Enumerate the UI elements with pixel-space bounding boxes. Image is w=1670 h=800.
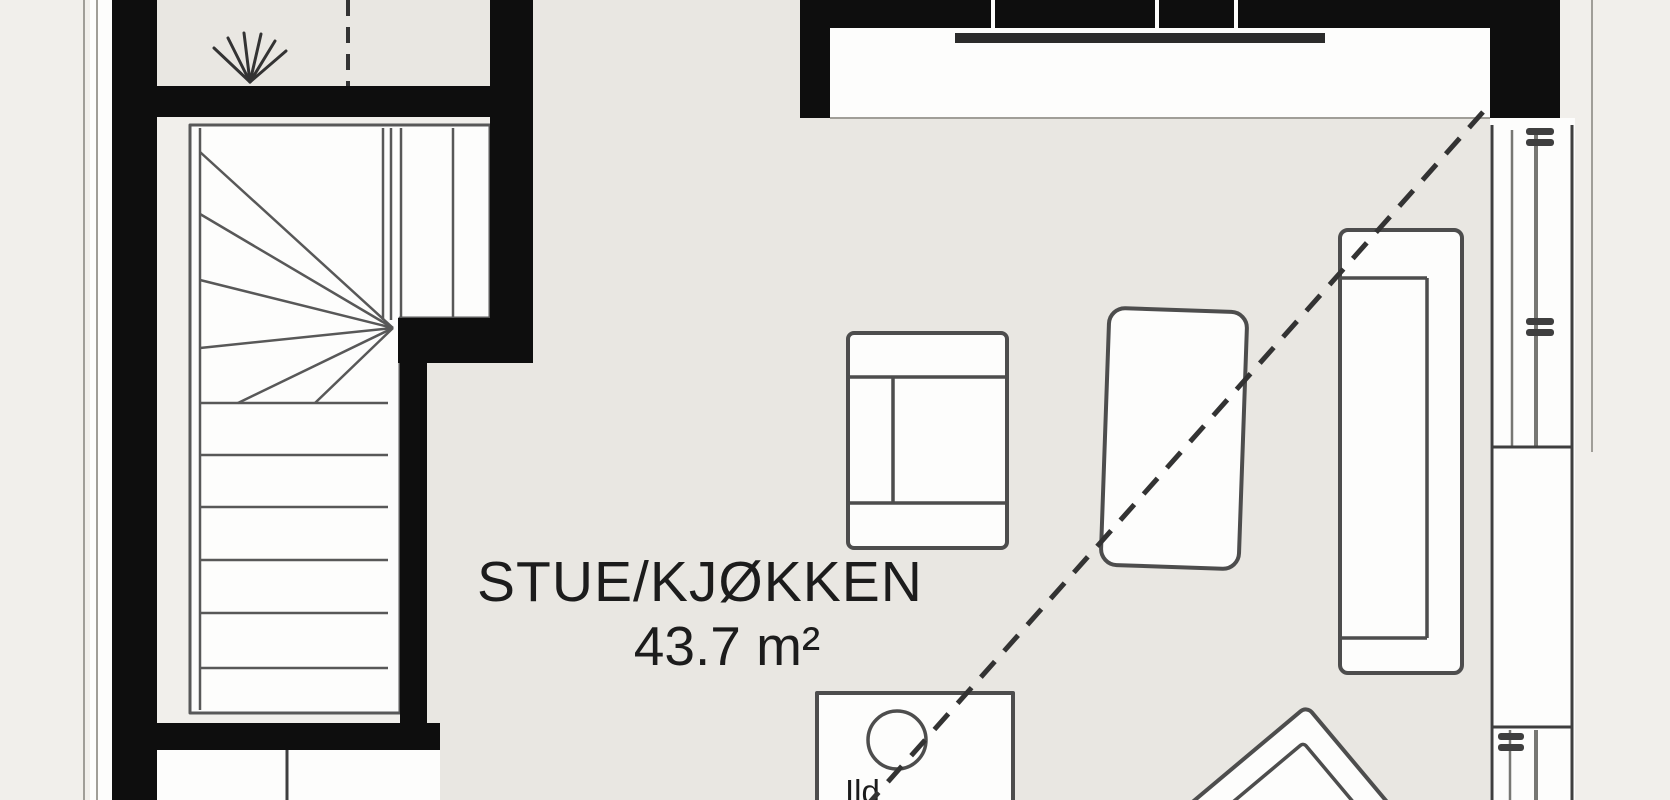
window-glass-panel-top bbox=[955, 33, 1325, 43]
window-vent-mark bbox=[1526, 139, 1554, 146]
window-vent-mark bbox=[1526, 318, 1554, 325]
stair-wall-corner bbox=[398, 318, 533, 363]
window-bay-right bbox=[1490, 118, 1575, 800]
hall-wall bbox=[157, 86, 533, 117]
coffee-table bbox=[1101, 308, 1248, 570]
window-vent-mark bbox=[1498, 744, 1524, 751]
left-wall-cladding bbox=[90, 0, 112, 800]
lower-room-floor bbox=[157, 750, 440, 800]
interior-wall-bottom bbox=[137, 723, 440, 750]
room-area-label: 43.7 m² bbox=[634, 615, 820, 677]
coffee-table-outline bbox=[1101, 308, 1248, 570]
window-vent-mark bbox=[1498, 733, 1524, 740]
fireplace: Ild bbox=[817, 693, 1013, 800]
window-pier-top bbox=[800, 0, 830, 118]
armchair bbox=[848, 333, 1007, 548]
exterior-wall-top bbox=[830, 0, 1560, 28]
right-window bbox=[1490, 0, 1592, 800]
armchair-outline bbox=[848, 333, 1007, 548]
stair-wall-lower bbox=[400, 360, 427, 750]
window-vent-mark bbox=[1526, 128, 1554, 135]
sofa-outline bbox=[1340, 230, 1462, 673]
window-frame-tick bbox=[1234, 0, 1238, 28]
window-vent-mark bbox=[1526, 329, 1554, 336]
floor-plan-svg: Ild STUE/KJØKKEN 43.7 m² bbox=[0, 0, 1670, 800]
sofa bbox=[1340, 230, 1462, 673]
exterior-wall-left bbox=[112, 0, 157, 800]
room-name-label: STUE/KJØKKEN bbox=[477, 550, 923, 614]
corner-pier-top-right bbox=[1490, 0, 1560, 125]
upper-hall-floor bbox=[157, 0, 497, 86]
floor-plan: Ild STUE/KJØKKEN 43.7 m² bbox=[0, 0, 1670, 800]
window-frame-tick bbox=[1155, 0, 1159, 28]
stair-wall-right bbox=[490, 0, 533, 363]
window-frame-tick bbox=[991, 0, 995, 28]
